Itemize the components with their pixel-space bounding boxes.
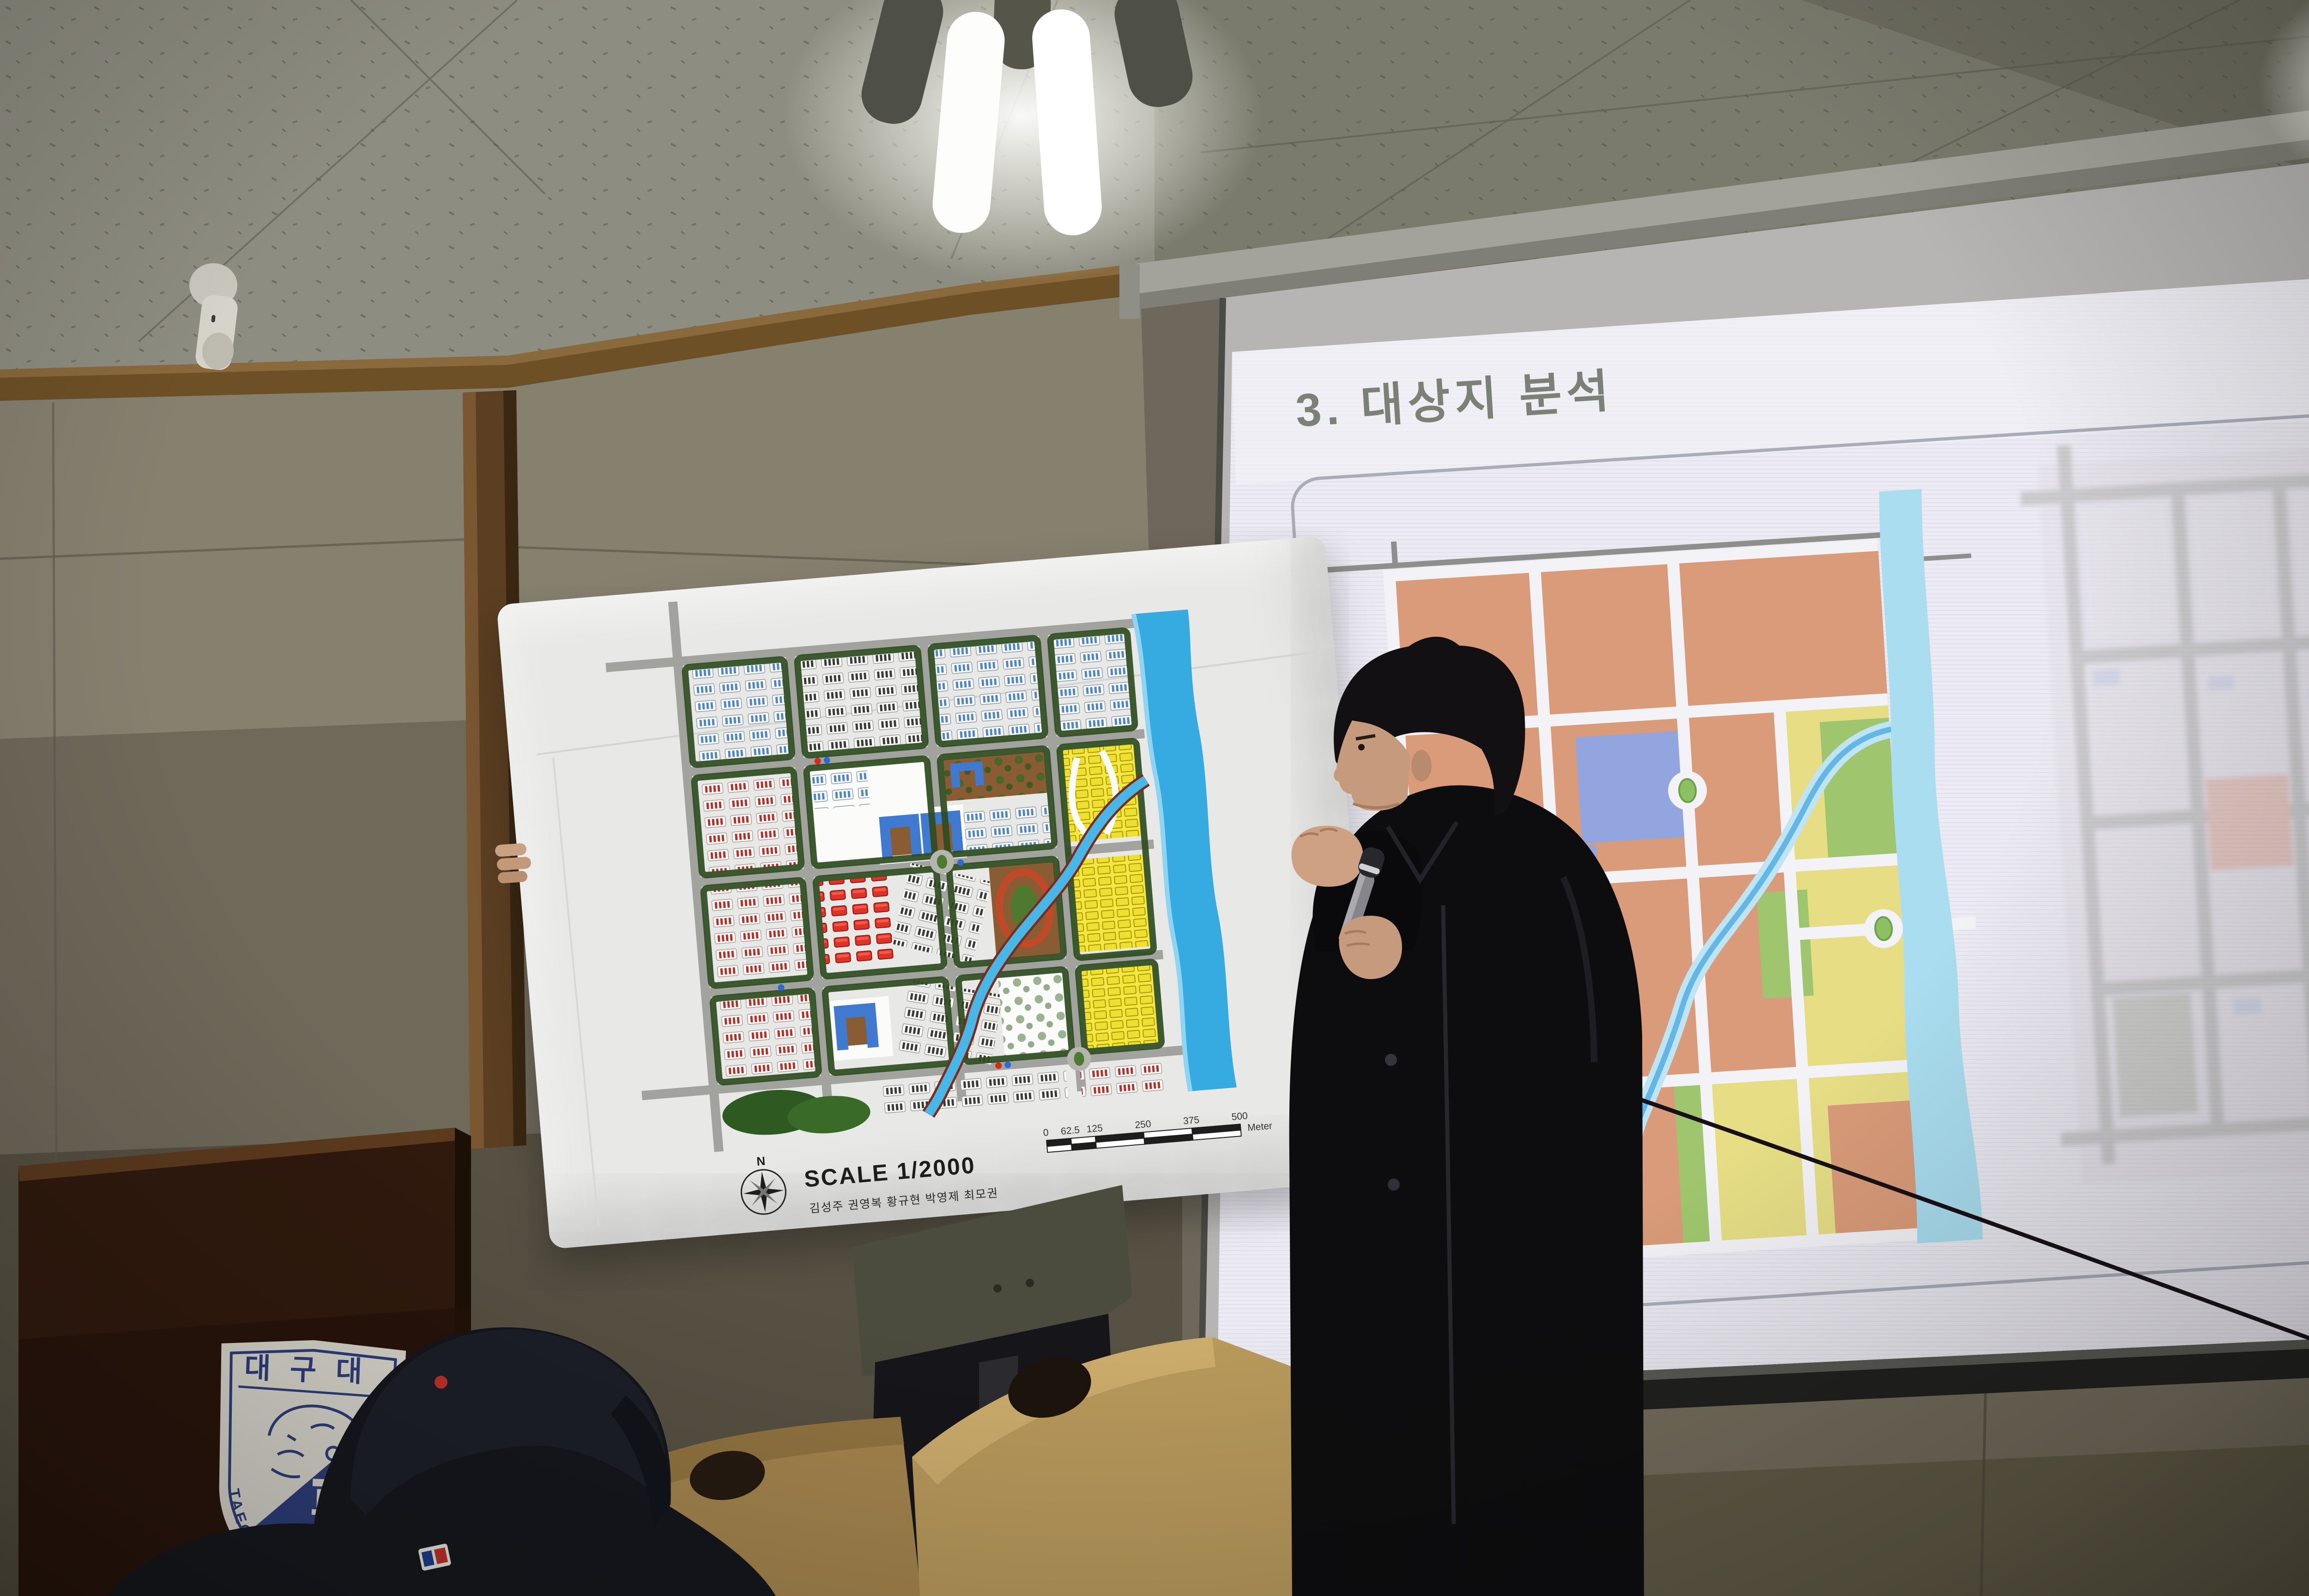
lecture-room-photo: 3. 대상지 분석 xyxy=(0,0,2309,1596)
lights xyxy=(0,0,2309,1596)
ceiling-light-main xyxy=(783,0,1263,282)
ceiling-light-corner xyxy=(2258,0,2309,185)
